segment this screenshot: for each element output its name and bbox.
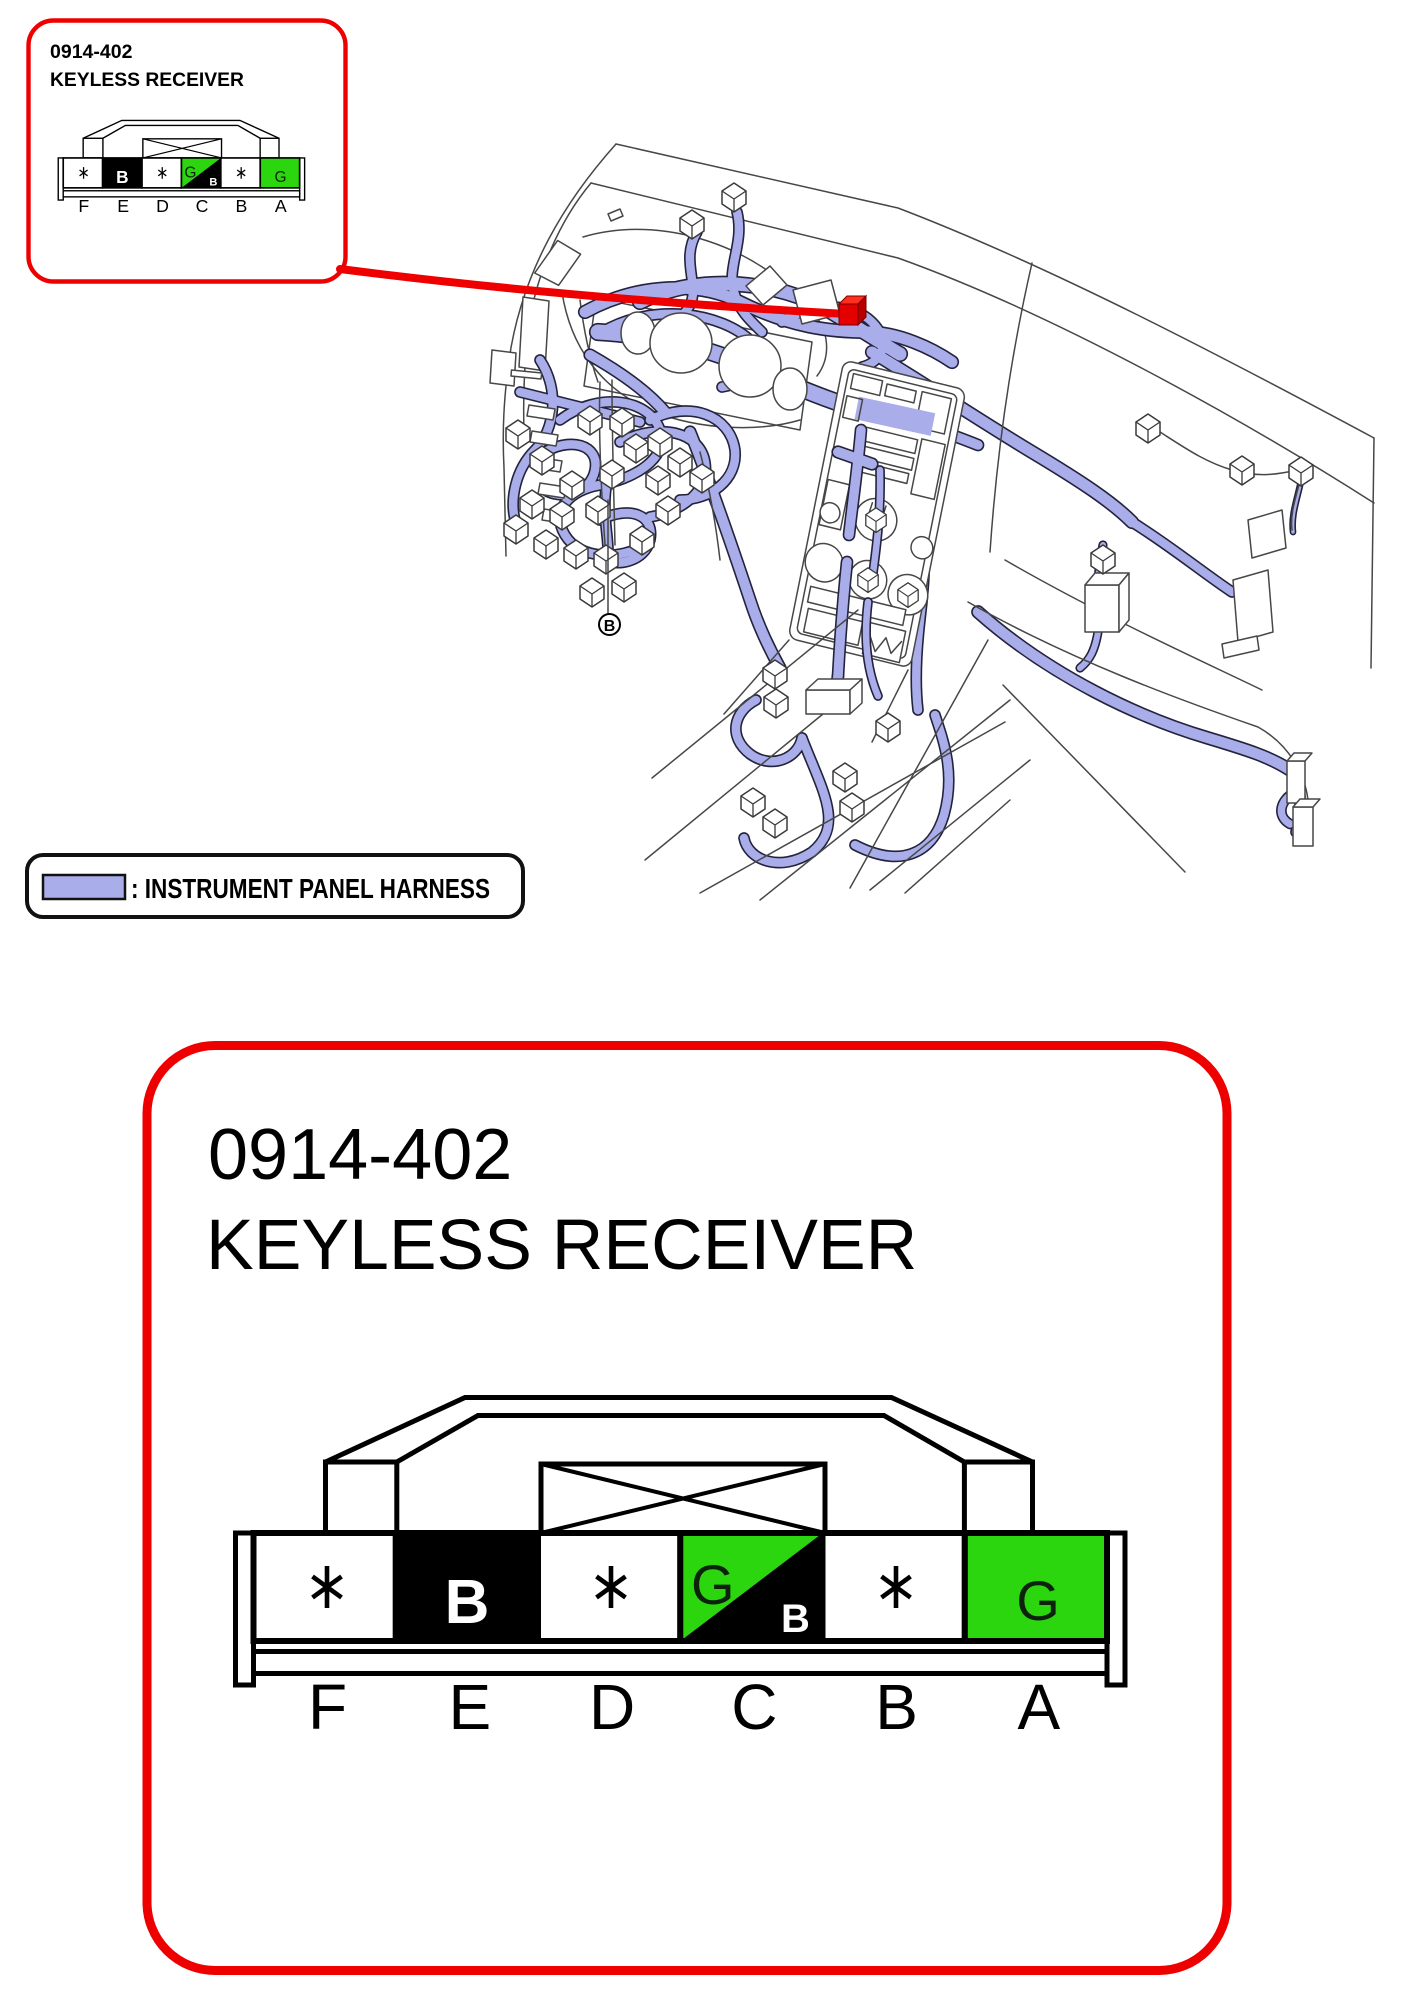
svg-text:D: D — [589, 1671, 635, 1743]
svg-text:E: E — [449, 1671, 492, 1743]
svg-text:: INSTRUMENT PANEL HARNESS: : INSTRUMENT PANEL HARNESS — [131, 873, 490, 904]
svg-text:B: B — [445, 1568, 490, 1637]
svg-text:A: A — [1018, 1671, 1061, 1743]
svg-text:0914-402: 0914-402 — [208, 1115, 512, 1195]
svg-text:KEYLESS RECEIVER: KEYLESS RECEIVER — [206, 1205, 917, 1285]
svg-text:G: G — [1016, 1569, 1060, 1632]
svg-text:F: F — [308, 1671, 347, 1743]
svg-text:0914-402: 0914-402 — [50, 41, 133, 63]
svg-text:B: B — [604, 618, 616, 635]
svg-text:B: B — [781, 1597, 810, 1641]
svg-text:C: C — [731, 1671, 777, 1743]
svg-text:KEYLESS RECEIVER: KEYLESS RECEIVER — [50, 70, 244, 91]
svg-text:B: B — [875, 1671, 918, 1743]
svg-text:G: G — [691, 1553, 735, 1616]
